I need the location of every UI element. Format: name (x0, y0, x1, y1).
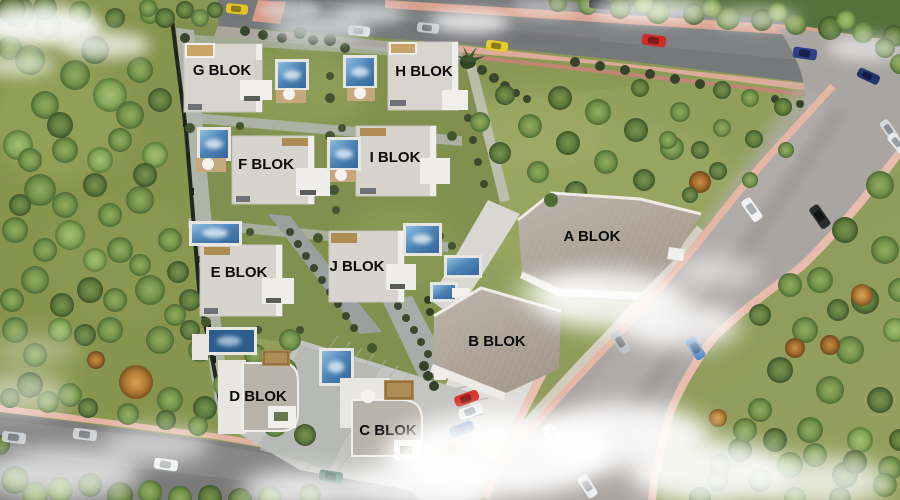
svg-text:E BLOK: E BLOK (211, 264, 268, 281)
svg-text:D BLOK: D BLOK (229, 388, 287, 405)
svg-text:H BLOK: H BLOK (395, 63, 453, 80)
svg-text:A BLOK: A BLOK (564, 228, 621, 245)
svg-text:B BLOK: B BLOK (468, 333, 526, 350)
svg-text:G BLOK: G BLOK (193, 62, 251, 79)
svg-text:I BLOK: I BLOK (370, 149, 421, 166)
svg-text:J BLOK: J BLOK (329, 258, 384, 275)
svg-text:F BLOK: F BLOK (238, 156, 294, 173)
